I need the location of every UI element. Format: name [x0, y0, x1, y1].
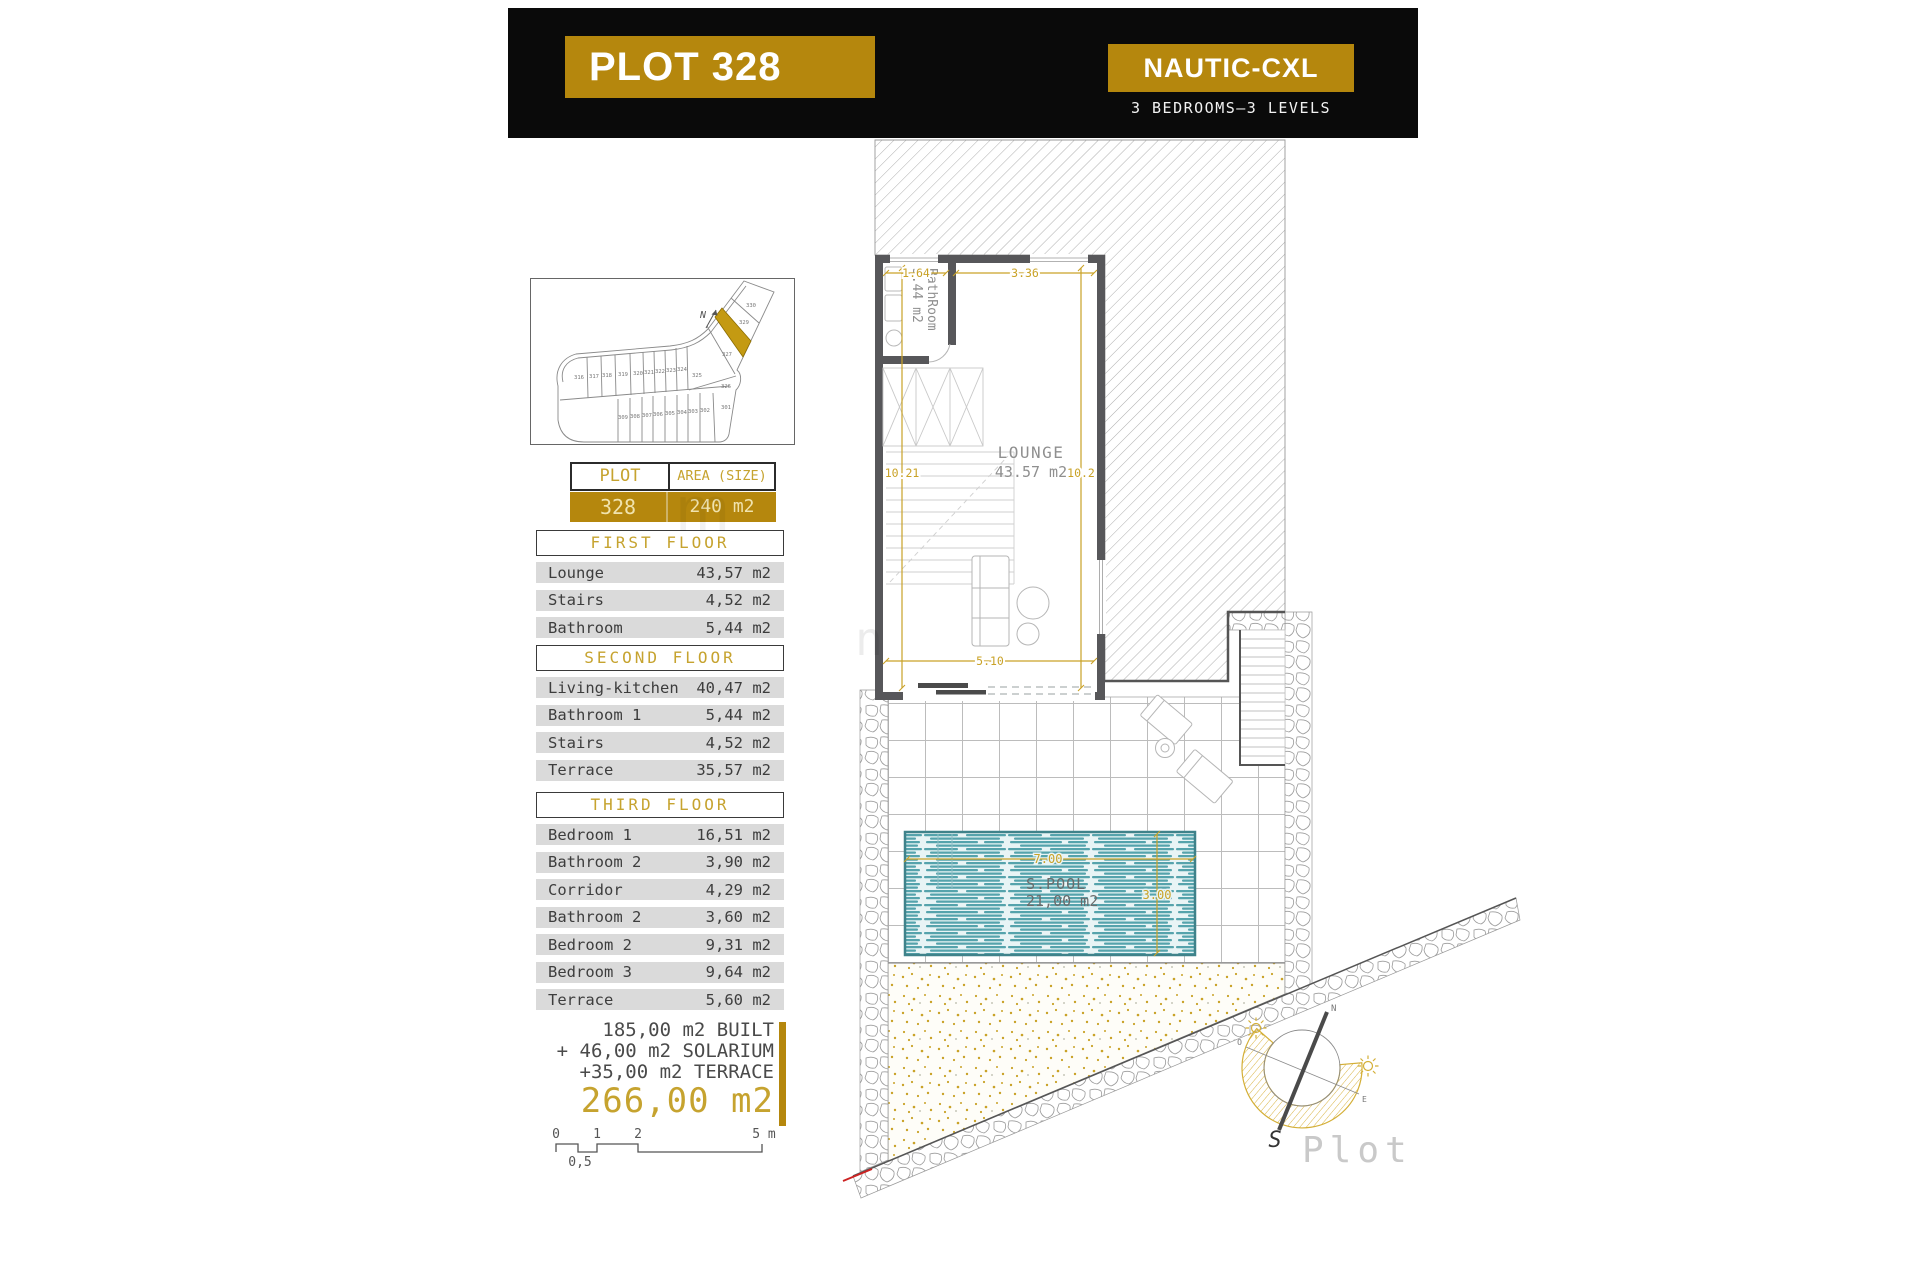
model-name-box: NAUTIC-CXL: [1108, 44, 1354, 92]
area-summary: 185,00 m2 BUILT + 46,00 m2 SOLARIUM +35,…: [536, 1020, 774, 1112]
solarium-area: + 46,00 m2 SOLARIUM: [536, 1041, 774, 1062]
room-area: 16,51 m2: [696, 826, 771, 844]
plan-sheet: PLOT 328 NAUTIC-CXL 3 BEDROOMS—3 LEVELS …: [0, 0, 1920, 1280]
plot-number: 320: [633, 371, 643, 377]
dim-lounge-width: 3.36: [1011, 266, 1039, 280]
table-row: Bathroom 23,90 m2: [536, 852, 784, 873]
plot-number: 307: [642, 413, 652, 419]
table-row: Stairs4,52 m2: [536, 590, 784, 611]
plot-number: 317: [589, 374, 599, 380]
table-row: Terrace5,60 m2: [536, 989, 784, 1010]
pool-width-dim: 7.00: [1034, 852, 1063, 866]
room-area: 5,44 m2: [706, 706, 771, 724]
header-band: PLOT 328 NAUTIC-CXL 3 BEDROOMS—3 LEVELS: [508, 8, 1418, 138]
external-stairs: [1240, 630, 1285, 765]
plot-number: 321: [644, 370, 654, 376]
watermark-letter: m: [676, 472, 729, 546]
room-label: Stairs: [548, 591, 604, 609]
room-label: Bathroom 2: [548, 908, 641, 926]
plot-number: 309: [618, 415, 628, 421]
plot-col-header: PLOT: [572, 464, 668, 489]
plot-number: 324: [677, 367, 688, 373]
room-label: Bathroom 2: [548, 853, 641, 871]
room-label: Lounge: [548, 564, 604, 582]
pool-area-label: 21,00 m2: [1026, 892, 1098, 910]
room-area: 9,31 m2: [706, 936, 771, 954]
room-area: 4,29 m2: [706, 881, 771, 899]
plot-number: 330: [746, 303, 756, 309]
svg-text:LOUNGE: LOUNGE: [998, 443, 1065, 462]
dim-right-height: 10.2: [1067, 466, 1095, 480]
watermark-letter: n: [855, 612, 883, 666]
scale-tick-label: 0: [552, 1127, 560, 1142]
compass-west-label: O: [1237, 1038, 1242, 1047]
room-area: 9,64 m2: [706, 963, 771, 981]
room-label: Corridor: [548, 881, 623, 899]
pool-label: S.POOL: [1026, 875, 1086, 893]
room-area: 4,52 m2: [706, 734, 771, 752]
model-subtitle: 3 BEDROOMS—3 LEVELS: [1108, 99, 1354, 117]
plot-title: PLOT 328: [589, 45, 782, 89]
table-row: Corridor4,29 m2: [536, 879, 784, 900]
scale-tick-label: 1: [593, 1127, 601, 1142]
room-label: Terrace: [548, 761, 613, 779]
scale-bar-shape: [556, 1144, 762, 1152]
plot-number: 302: [700, 408, 710, 414]
svg-text:43.57 m2: 43.57 m2: [995, 463, 1067, 481]
plot-number-value: 328: [570, 492, 666, 522]
plot-number: 306: [653, 412, 663, 418]
third-floor-table: THIRD FLOOR Bedroom 116,51 m2 Bathroom 2…: [536, 792, 784, 1017]
table-row: Living-kitchen40,47 m2: [536, 677, 784, 698]
room-area: 35,57 m2: [696, 761, 771, 779]
plot-number: 319: [618, 372, 628, 378]
bathroom-fixtures: [885, 267, 902, 346]
plot-number: 323: [666, 368, 676, 374]
room-area: 43,57 m2: [696, 564, 771, 582]
total-area: 266,00 m2: [536, 1091, 774, 1112]
dim-bathroom-width: 1.64: [902, 266, 930, 280]
plot-number: 305: [665, 411, 675, 417]
plot-number: 303: [688, 409, 698, 415]
room-label: Living-kitchen: [548, 679, 679, 697]
site-map: N 330 329 327 325 326 316 317 318 319 32…: [530, 278, 795, 445]
plot-number: 329: [739, 320, 749, 326]
plot-number: 304: [677, 410, 688, 416]
floor-title: FIRST FLOOR: [536, 530, 784, 556]
plot-number: 316: [574, 375, 584, 381]
compass-rose: N O E S Plot: [1237, 1004, 1413, 1171]
sun-icon: [1358, 1056, 1379, 1077]
swimming-pool: S.POOL 21,00 m2 7.00 3.00: [904, 831, 1196, 956]
plot-number: 301: [721, 405, 731, 411]
room-area: 3,90 m2: [706, 853, 771, 871]
room-area: 5,60 m2: [706, 991, 771, 1009]
room-area: 4,52 m2: [706, 591, 771, 609]
first-floor-table: FIRST FLOOR Lounge43,57 m2 Stairs4,52 m2…: [536, 530, 784, 645]
window: [1096, 560, 1106, 634]
compass-south-label: S: [1268, 1128, 1281, 1153]
plot-number: 325: [692, 373, 702, 379]
table-row: Bedroom 39,64 m2: [536, 962, 784, 983]
plot-title-box: PLOT 328: [565, 36, 875, 98]
table-row: Bedroom 29,31 m2: [536, 934, 784, 955]
room-label: Bedroom 3: [548, 963, 632, 981]
scale-bar: 0 1 2 5 m 0,5: [545, 1124, 785, 1172]
pool-depth-dim: 3.00: [1143, 888, 1172, 902]
table-row: Stairs4,52 m2: [536, 732, 784, 753]
compass-east-label: E: [1362, 1095, 1367, 1104]
north-label: N: [699, 310, 707, 321]
room-label: Bathroom 1: [548, 706, 641, 724]
floor-title: SECOND FLOOR: [536, 645, 784, 671]
gold-accent-bar: [779, 1022, 786, 1126]
plot-number: 318: [602, 373, 612, 379]
scale-half-label: 0,5: [568, 1155, 591, 1170]
table-row: Bathroom 15,44 m2: [536, 705, 784, 726]
model-name-block: NAUTIC-CXL 3 BEDROOMS—3 LEVELS: [1108, 44, 1354, 117]
table-row: Bathroom 23,60 m2: [536, 907, 784, 928]
room-area: 40,47 m2: [696, 679, 771, 697]
plot-number: 326: [721, 384, 731, 390]
table-row: Lounge43,57 m2: [536, 562, 784, 583]
window: [890, 254, 938, 264]
plot-brand-text: Plot: [1302, 1130, 1413, 1171]
floor-plan-drawing: BathRoom 5.44 m2 LOUNGE 43.57 m2 1.64 3.…: [840, 138, 1530, 1210]
plot-number: 308: [630, 414, 640, 420]
table-row: Terrace35,57 m2: [536, 760, 784, 781]
table-row: Bathroom5,44 m2: [536, 617, 784, 638]
room-label: Bathroom: [548, 619, 623, 637]
scale-tick-label: 2: [634, 1127, 642, 1142]
window: [1030, 254, 1088, 264]
room-label: Stairs: [548, 734, 604, 752]
model-name: NAUTIC-CXL: [1144, 53, 1319, 83]
plot-number: 327: [722, 352, 732, 358]
room-label: Bedroom 2: [548, 936, 632, 954]
terrace-area: +35,00 m2 TERRACE: [536, 1062, 774, 1083]
dim-left-height: 10.21: [885, 466, 920, 480]
room-area: 3,60 m2: [706, 908, 771, 926]
scale-tick-label: 5 m: [752, 1127, 776, 1142]
room-label: Terrace: [548, 991, 613, 1009]
dim-bottom-width: 5.10: [976, 654, 1004, 668]
second-floor-table: SECOND FLOOR Living-kitchen40,47 m2 Bath…: [536, 645, 784, 787]
table-row: Bedroom 116,51 m2: [536, 824, 784, 845]
compass-north-label: N: [1331, 1004, 1336, 1014]
plot-area-table: PLOT AREA (SIZE) 328 240 m2: [570, 462, 776, 522]
floor-title: THIRD FLOOR: [536, 792, 784, 818]
room-area: 5,44 m2: [706, 619, 771, 637]
sand-area: [888, 963, 1285, 1161]
room-label: Bedroom 1: [548, 826, 632, 844]
built-area: 185,00 m2 BUILT: [536, 1020, 774, 1041]
plot-number: 322: [655, 369, 665, 375]
